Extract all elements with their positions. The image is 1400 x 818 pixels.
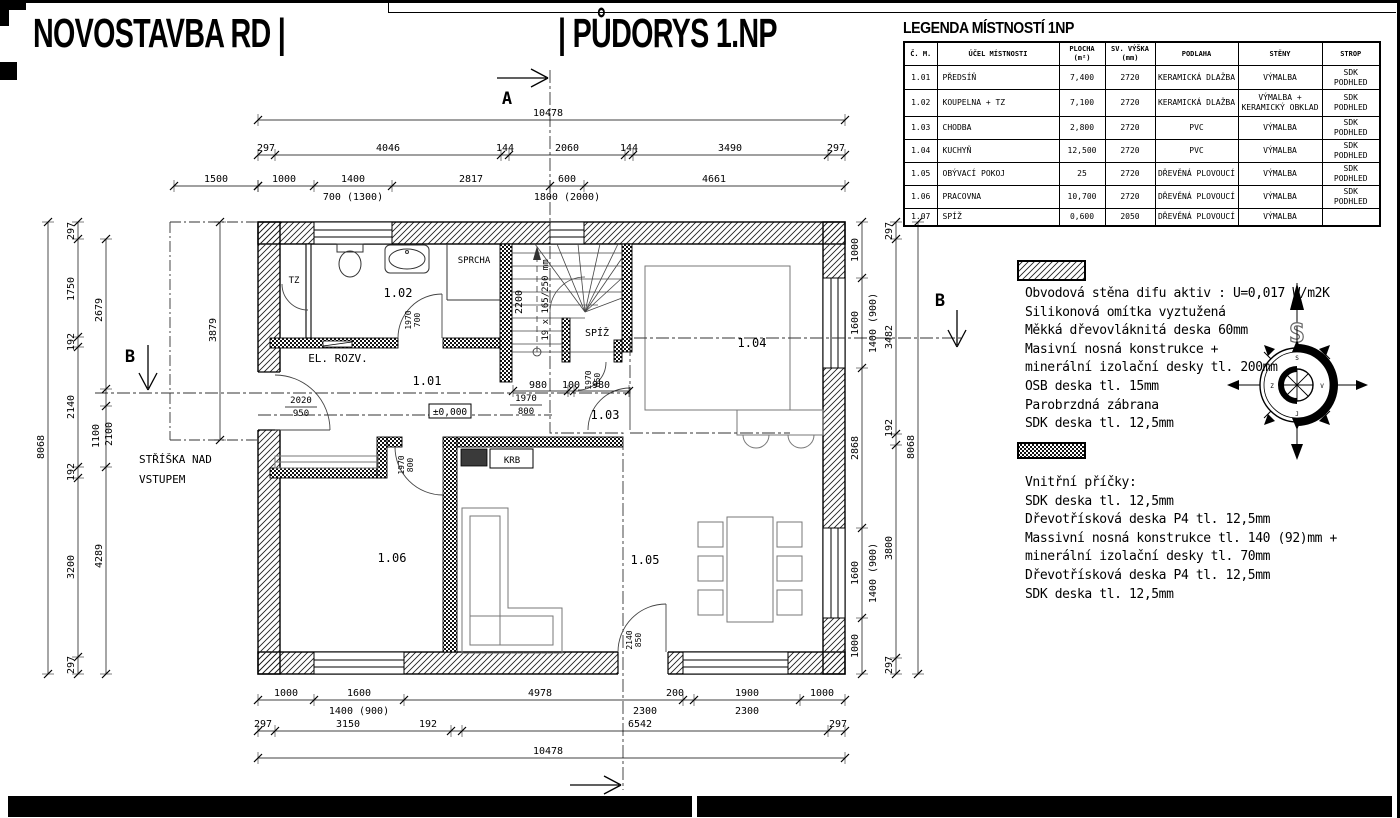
dim-label: SPRCHA (458, 256, 491, 266)
dim-label: KRB (504, 456, 520, 466)
dim-label: 4289 (94, 544, 105, 568)
dim-label: 1600 (850, 311, 861, 335)
bathroom-fixtures (337, 244, 500, 300)
dim-label: B (935, 291, 945, 311)
compass-point: S (1295, 355, 1299, 362)
fireplace (461, 449, 533, 468)
dim-label: 192 (66, 463, 77, 481)
sofa-seat (470, 516, 500, 645)
dim-label: 980 (529, 380, 547, 391)
chair (698, 590, 723, 615)
dim-label: 2300 (633, 706, 657, 717)
sofa (462, 508, 562, 653)
dim-label: 1400 (900) (329, 706, 389, 717)
dim-label: 1400 (341, 174, 365, 185)
dim-label: 1800 (2000) (534, 192, 600, 203)
dim-label: 297 (829, 719, 847, 730)
dim-label: 2140 (625, 630, 634, 649)
dim-label: 2817 (459, 174, 483, 185)
dim-label: 1600 (347, 688, 371, 699)
chair (698, 556, 723, 581)
dim-label: SPÍŽ (585, 326, 609, 339)
dim-label: TZ (289, 276, 300, 286)
dim-label: 3200 (66, 555, 77, 579)
compass-point: J (1295, 411, 1299, 418)
dim-label: 144 (496, 143, 514, 154)
dim-label: 6542 (628, 719, 652, 730)
compass-rose: S (1227, 283, 1368, 460)
dim-label: 297 (827, 143, 845, 154)
dim-label: 1900 (735, 688, 759, 699)
dim-label: 1970 (584, 370, 593, 389)
dim-label: B (125, 347, 135, 367)
dim-label: 600 (558, 174, 576, 185)
dim-label: 650 (593, 373, 602, 388)
dim-label: 19 x 165/250 mm (541, 259, 551, 340)
dim-label: 297 (884, 222, 895, 240)
dim-label: 297 (66, 656, 77, 674)
dim-label: A (579, 796, 589, 816)
floor-plan-drawing: S (0, 0, 1400, 818)
dim-label: 3150 (336, 719, 360, 730)
dim-label: 1000 (274, 688, 298, 699)
dim-label: 850 (634, 633, 643, 648)
chair (777, 556, 802, 581)
compass-point: V (1320, 383, 1324, 390)
tz-door-arc (282, 284, 308, 310)
dim-label: 1.02 (384, 286, 413, 300)
dim-label: 192 (419, 719, 437, 730)
dim-label: 8068 (36, 435, 47, 459)
legend-swatches (1018, 261, 1085, 458)
dim-label: 4661 (702, 174, 726, 185)
dim-label: 3482 (884, 325, 895, 349)
dim-label: 2140 (66, 395, 77, 419)
dining-table (727, 517, 773, 622)
dim-label: 1.03 (591, 408, 620, 422)
south-arrow (1291, 444, 1303, 460)
dim-label: 8068 (906, 435, 917, 459)
dim-label: EL. ROZV. (308, 352, 368, 365)
bathtub-drain (406, 251, 409, 254)
dim-label: 2060 (555, 143, 579, 154)
dim-label: STŘÍŠKA NAD (139, 453, 212, 466)
dim-label: A (502, 89, 512, 109)
dim-label: 1.05 (631, 553, 660, 567)
dim-label: 200 (666, 688, 684, 699)
dim-label: 700 (413, 313, 422, 328)
dim-label: 297 (66, 222, 77, 240)
dim-label: 1000 (272, 174, 296, 185)
chair (777, 590, 802, 615)
dim-label: 1.04 (738, 336, 767, 350)
dim-label: VSTUPEM (139, 473, 186, 486)
dim-label: 1750 (66, 277, 77, 301)
dim-label: 1.01 (413, 374, 442, 388)
dim-label: 1400 (900) (868, 543, 879, 603)
dim-label: 1000 (850, 238, 861, 262)
dim-label: 1100 (91, 424, 102, 448)
dim-label: 2868 (850, 436, 861, 460)
dim-label: 1970 (404, 310, 413, 329)
dim-label: 144 (620, 143, 638, 154)
dim-label: 1.06 (378, 551, 407, 565)
chair (698, 522, 723, 547)
dim-label: 1000 (850, 634, 861, 658)
dim-label: 800 (406, 458, 415, 473)
electrical-cabinet (323, 341, 352, 347)
dim-label: 1500 (204, 174, 228, 185)
dim-label: 297 (257, 143, 275, 154)
dim-label: 1600 (850, 561, 861, 585)
dim-label: 3800 (884, 536, 895, 560)
dim-label: 4978 (528, 688, 552, 699)
sofa-seat-2 (470, 616, 553, 645)
dim-label: 800 (518, 407, 534, 417)
dim-label: 100 (562, 380, 580, 391)
bar-stool (743, 435, 769, 448)
dim-label: 1000 (810, 688, 834, 699)
dim-label: 192 (884, 419, 895, 437)
dim-label: 10478 (533, 108, 563, 119)
dim-label: 2679 (94, 298, 105, 322)
bar-stool-2 (788, 435, 814, 448)
dim-label: 4046 (376, 143, 400, 154)
bathtub-basin (389, 249, 425, 269)
dim-label: 2020 (290, 396, 312, 406)
dim-label: 297 (884, 656, 895, 674)
dim-label: 1970 (515, 394, 537, 404)
dim-label: 192 (66, 333, 77, 351)
dim-label: 10478 (533, 746, 563, 757)
dim-label: 3879 (208, 318, 219, 342)
dim-label: 700 (1300) (323, 192, 383, 203)
dim-label: 2100 (104, 422, 115, 446)
dim-label: 1400 (900) (868, 293, 879, 353)
partition-swatch (1018, 443, 1085, 458)
dim-label: 950 (293, 409, 309, 419)
north-arrow (1290, 283, 1304, 310)
toilet-bowl (339, 251, 361, 277)
chair (777, 522, 802, 547)
dim-label: 2200 (514, 290, 525, 314)
dim-label: ±0,000 (433, 407, 468, 418)
exterior-wall-swatch (1018, 261, 1085, 280)
dim-label: 1970 (397, 455, 406, 474)
dim-label: 3490 (718, 143, 742, 154)
dim-label: 297 (254, 719, 272, 730)
kitchen-bar (737, 410, 823, 435)
drawing-sheet: NOVOSTAVBA RD | | PŮDORYS 1.NP LEGENDA M… (0, 0, 1400, 818)
dim-label: 2300 (735, 706, 759, 717)
compass-point: Z (1270, 383, 1274, 390)
